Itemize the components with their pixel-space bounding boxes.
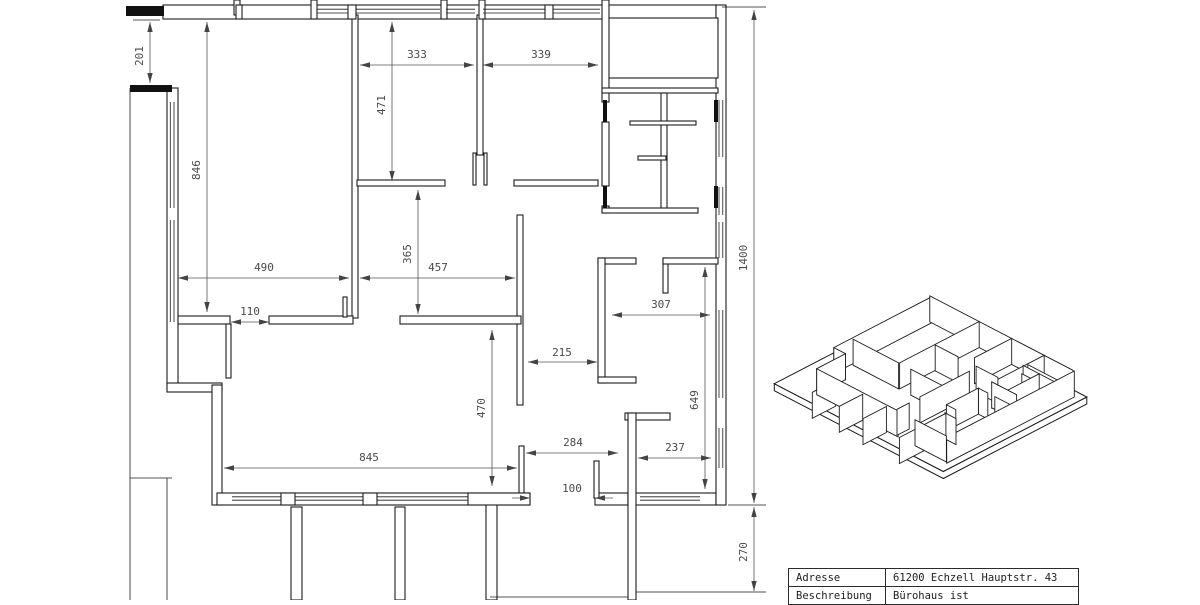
title-block-label: Beschreibung bbox=[789, 587, 886, 605]
dimension-label: 215 bbox=[552, 346, 572, 359]
wall bbox=[357, 180, 445, 186]
wall bbox=[595, 493, 628, 505]
title-block-row-beschreibung: Beschreibung Bürohaus ist bbox=[789, 587, 1079, 605]
floor-plan: 2018463334713394904573651102153076494708… bbox=[126, 0, 766, 600]
dimension-label: 284 bbox=[563, 436, 583, 449]
door-leaf bbox=[714, 186, 718, 208]
dimension-label: 237 bbox=[665, 441, 685, 454]
wall bbox=[628, 413, 636, 600]
wall bbox=[602, 208, 698, 213]
wall bbox=[598, 377, 636, 383]
cad-viewport: { "drawing": { "dims": { "left_offset": … bbox=[0, 0, 1200, 600]
wall bbox=[519, 446, 524, 493]
wall bbox=[602, 88, 718, 93]
wall bbox=[163, 5, 716, 19]
wall bbox=[167, 88, 178, 390]
dimension-label: 365 bbox=[401, 244, 414, 264]
wall bbox=[628, 493, 716, 505]
dimension-label: 333 bbox=[407, 48, 427, 61]
wall bbox=[363, 493, 377, 505]
wall bbox=[226, 324, 231, 378]
dimension-label: 201 bbox=[133, 46, 146, 66]
dimension-label: 845 bbox=[359, 451, 379, 464]
wall bbox=[352, 15, 358, 318]
wall-stub bbox=[126, 6, 164, 16]
wall bbox=[716, 5, 726, 505]
wall bbox=[477, 15, 483, 155]
wall bbox=[514, 180, 598, 186]
wall bbox=[291, 507, 302, 600]
dimension-label: 270 bbox=[737, 542, 750, 562]
wall bbox=[638, 156, 666, 160]
dimension-label: 490 bbox=[254, 261, 274, 274]
wall bbox=[269, 316, 353, 324]
wall bbox=[178, 316, 230, 324]
wall bbox=[343, 297, 347, 317]
title-block-row-adresse: Adresse 61200 Echzell Hauptstr. 43 bbox=[789, 569, 1079, 587]
door-leaf bbox=[603, 186, 607, 208]
wall bbox=[395, 507, 405, 600]
wall bbox=[212, 385, 222, 505]
dimension-label: 471 bbox=[375, 95, 388, 115]
wall bbox=[602, 0, 609, 102]
dimension-label: 339 bbox=[531, 48, 551, 61]
wall bbox=[598, 258, 605, 383]
wall bbox=[473, 153, 476, 185]
wall bbox=[545, 5, 553, 19]
isometric-view bbox=[774, 296, 1087, 479]
wall bbox=[236, 5, 242, 19]
dimension-label: 649 bbox=[688, 390, 701, 410]
door-leaf bbox=[714, 100, 718, 122]
wall bbox=[311, 0, 317, 19]
wall bbox=[630, 121, 696, 125]
wall bbox=[486, 502, 497, 600]
wall bbox=[608, 18, 718, 78]
cad-drawing: 2018463334713394904573651102153076494708… bbox=[0, 0, 1200, 600]
wall bbox=[484, 153, 487, 185]
title-block-value: 61200 Echzell Hauptstr. 43 bbox=[886, 569, 1079, 587]
dimension-label: 470 bbox=[475, 398, 488, 418]
title-block-value: Bürohaus ist bbox=[886, 587, 1079, 605]
dimension-label: 307 bbox=[651, 298, 671, 311]
title-block: Adresse 61200 Echzell Hauptstr. 43 Besch… bbox=[788, 568, 1079, 605]
dimension-label: 457 bbox=[428, 261, 448, 274]
dimension-label: 100 bbox=[562, 482, 582, 495]
iso-wall bbox=[978, 388, 987, 419]
title-block-table: Adresse 61200 Echzell Hauptstr. 43 Besch… bbox=[788, 568, 1079, 605]
wall bbox=[594, 461, 599, 498]
dimension-label: 1400 bbox=[737, 245, 750, 272]
wall bbox=[400, 316, 521, 324]
title-block-label: Adresse bbox=[789, 569, 886, 587]
dimension-label: 110 bbox=[240, 305, 260, 318]
wall bbox=[661, 93, 667, 211]
wall bbox=[517, 215, 523, 405]
dimension-label: 846 bbox=[190, 160, 203, 180]
wall bbox=[281, 493, 295, 505]
wall bbox=[468, 493, 530, 505]
wall bbox=[663, 258, 718, 264]
wall-stub bbox=[130, 85, 172, 92]
wall bbox=[348, 5, 356, 19]
wall bbox=[602, 122, 609, 186]
door-leaf bbox=[603, 100, 607, 122]
